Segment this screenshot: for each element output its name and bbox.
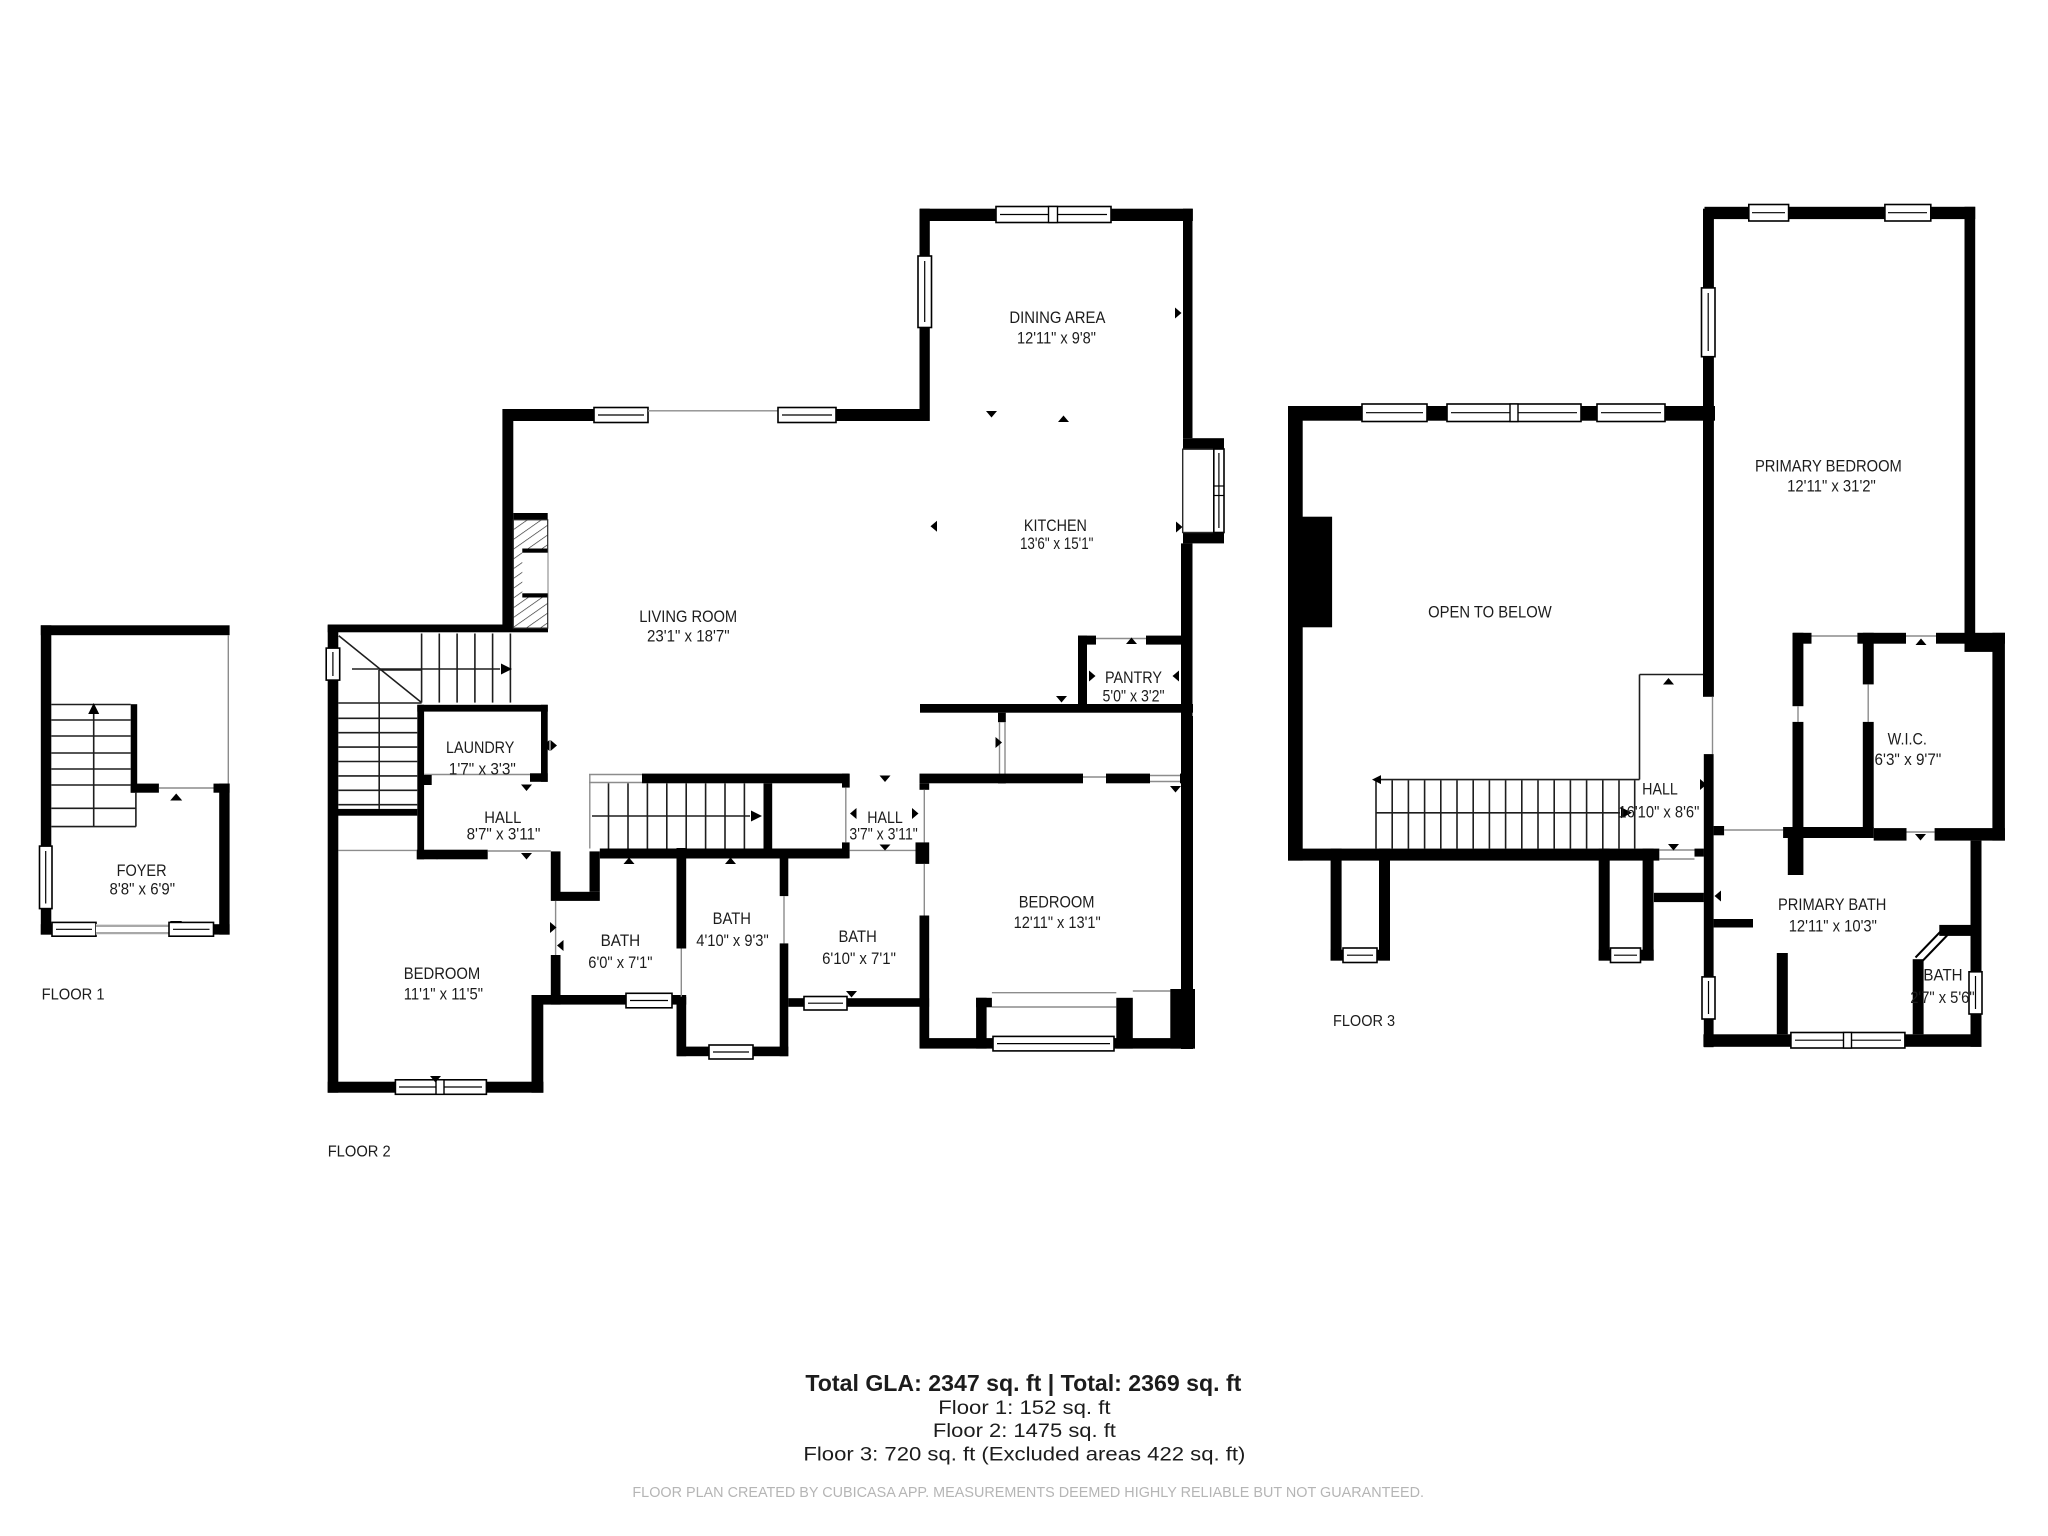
svg-text:6'0" x 7'1": 6'0" x 7'1" bbox=[588, 953, 652, 972]
svg-text:5'0" x 3'2": 5'0" x 3'2" bbox=[1103, 686, 1165, 705]
svg-text:11'1" x 11'5": 11'1" x 11'5" bbox=[404, 984, 483, 1003]
svg-text:W.I.C.: W.I.C. bbox=[1888, 730, 1927, 749]
svg-text:6'10" x 7'1": 6'10" x 7'1" bbox=[822, 949, 896, 968]
svg-text:BATH: BATH bbox=[713, 909, 751, 928]
svg-text:DINING AREA: DINING AREA bbox=[1009, 308, 1106, 327]
svg-text:PANTRY: PANTRY bbox=[1105, 668, 1162, 687]
svg-text:HALL: HALL bbox=[1642, 780, 1678, 799]
svg-text:FLOOR 1: FLOOR 1 bbox=[42, 986, 105, 1003]
svg-text:Floor 3: 720 sq. ft (Excluded: Floor 3: 720 sq. ft (Excluded areas 422 … bbox=[803, 1445, 1245, 1466]
svg-text:12'11" x 9'8": 12'11" x 9'8" bbox=[1017, 329, 1096, 348]
svg-text:12'11" x 31'2": 12'11" x 31'2" bbox=[1787, 476, 1876, 495]
svg-text:PRIMARY BEDROOM: PRIMARY BEDROOM bbox=[1755, 456, 1902, 475]
svg-text:FLOOR PLAN CREATED BY CUBICASA: FLOOR PLAN CREATED BY CUBICASA APP. MEAS… bbox=[632, 1484, 1424, 1501]
svg-text:6'3" x 9'7": 6'3" x 9'7" bbox=[1875, 750, 1942, 769]
svg-text:BATH: BATH bbox=[601, 931, 641, 950]
svg-text:Floor 1: 152 sq. ft: Floor 1: 152 sq. ft bbox=[938, 1398, 1111, 1419]
svg-text:OPEN TO BELOW: OPEN TO BELOW bbox=[1428, 603, 1552, 622]
svg-text:1'7" x 3'3": 1'7" x 3'3" bbox=[449, 760, 516, 779]
svg-text:FLOOR 3: FLOOR 3 bbox=[1333, 1013, 1395, 1030]
svg-text:23'1" x 18'7": 23'1" x 18'7" bbox=[647, 627, 730, 646]
svg-text:KITCHEN: KITCHEN bbox=[1024, 516, 1087, 535]
svg-text:BATH: BATH bbox=[1923, 966, 1962, 985]
svg-text:Total GLA: 2347 sq. ft | Total: Total GLA: 2347 sq. ft | Total: 2369 sq.… bbox=[805, 1370, 1241, 1396]
svg-text:BEDROOM: BEDROOM bbox=[404, 964, 481, 983]
svg-text:3'7" x 3'11": 3'7" x 3'11" bbox=[849, 824, 917, 843]
svg-text:2'7" x 5'6": 2'7" x 5'6" bbox=[1910, 988, 1974, 1007]
svg-text:PRIMARY BATH: PRIMARY BATH bbox=[1778, 895, 1886, 914]
svg-text:13'6" x 15'1": 13'6" x 15'1" bbox=[1020, 534, 1094, 553]
svg-text:8'7" x 3'11": 8'7" x 3'11" bbox=[467, 824, 541, 843]
svg-text:Floor 2: 1475 sq. ft: Floor 2: 1475 sq. ft bbox=[933, 1421, 1117, 1442]
svg-text:FOYER: FOYER bbox=[117, 861, 167, 880]
svg-text:12'11" x 10'3": 12'11" x 10'3" bbox=[1789, 917, 1877, 936]
svg-text:BATH: BATH bbox=[838, 927, 876, 946]
svg-text:16'10" x 8'6": 16'10" x 8'6" bbox=[1618, 802, 1699, 821]
svg-text:LIVING ROOM: LIVING ROOM bbox=[639, 607, 737, 626]
svg-text:12'11" x 13'1": 12'11" x 13'1" bbox=[1014, 913, 1101, 932]
svg-text:4'10" x 9'3": 4'10" x 9'3" bbox=[696, 931, 768, 950]
svg-text:8'8" x 6'9": 8'8" x 6'9" bbox=[110, 880, 176, 899]
svg-text:FLOOR 2: FLOOR 2 bbox=[328, 1143, 391, 1160]
svg-text:LAUNDRY: LAUNDRY bbox=[446, 738, 514, 757]
svg-text:BEDROOM: BEDROOM bbox=[1019, 892, 1095, 911]
